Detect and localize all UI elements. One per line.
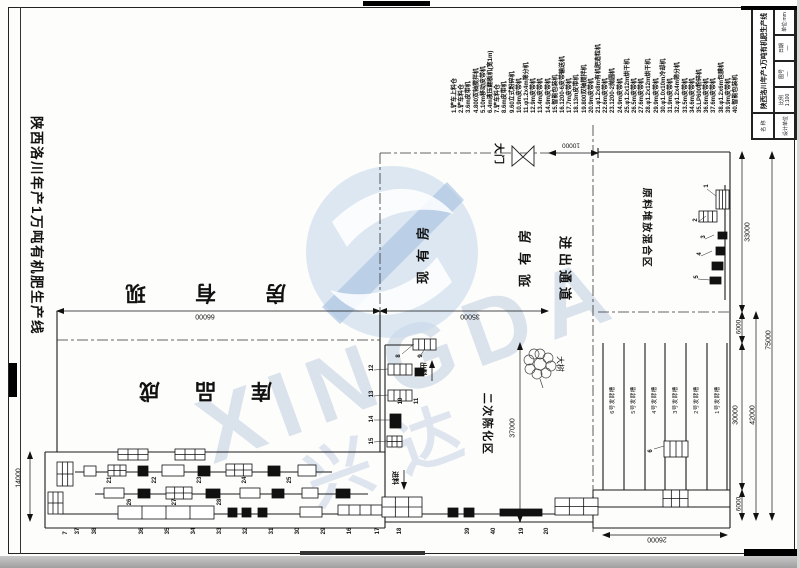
scan-artifact-topright xyxy=(741,6,798,10)
scan-artifact-bottomright xyxy=(744,549,798,556)
scan-edge-band xyxy=(0,556,800,568)
scan-artifact-bottom xyxy=(300,551,425,555)
binding-margin-line xyxy=(20,7,21,554)
scan-artifact-top xyxy=(363,1,430,6)
sheet-border xyxy=(8,7,795,554)
drawing-sheet: XINGDA 兴达 xyxy=(0,0,800,568)
scan-artifact-left xyxy=(9,363,17,397)
